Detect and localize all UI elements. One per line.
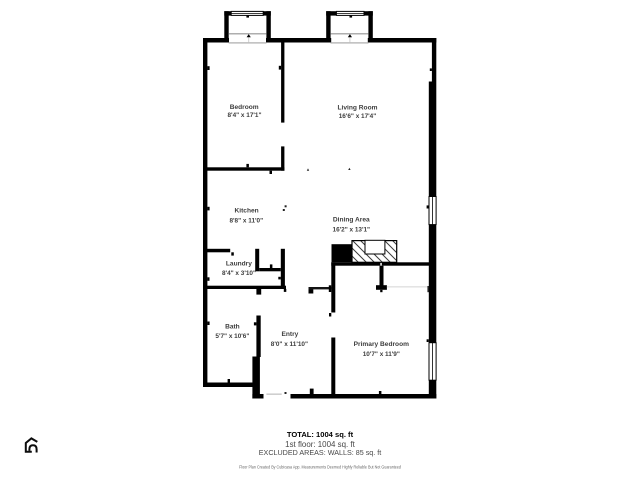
svg-text:TOTAL: 1004 sq. ft: TOTAL: 1004 sq. ft xyxy=(287,430,354,439)
svg-text:Kitchen: Kitchen xyxy=(235,207,259,214)
svg-text:Floor Plan Created By Cubicasa: Floor Plan Created By Cubicasa App. Meas… xyxy=(239,465,402,470)
svg-text:Laundry: Laundry xyxy=(226,261,252,268)
svg-text:Living Room: Living Room xyxy=(338,104,378,111)
svg-text:8'0" x 11'10": 8'0" x 11'10" xyxy=(271,341,308,348)
svg-text:10'7" x 11'9": 10'7" x 11'9" xyxy=(363,351,400,358)
svg-text:Dining Area: Dining Area xyxy=(333,217,370,224)
svg-text:5'7" x 10'6": 5'7" x 10'6" xyxy=(215,333,249,340)
svg-text:8'4" x 3'10": 8'4" x 3'10" xyxy=(222,270,256,277)
svg-text:8'8" x 11'0": 8'8" x 11'0" xyxy=(229,217,263,224)
svg-text:16'6" x 17'4": 16'6" x 17'4" xyxy=(339,113,377,120)
svg-text:Entry: Entry xyxy=(281,331,298,338)
svg-text:16'2" x 13'1": 16'2" x 13'1" xyxy=(333,227,371,234)
svg-text:EXCLUDED AREAS: WALLS: 85 sq.: EXCLUDED AREAS: WALLS: 85 sq. ft xyxy=(259,448,382,457)
svg-text:Bath: Bath xyxy=(225,324,240,331)
svg-text:Primary Bedroom: Primary Bedroom xyxy=(354,341,409,348)
svg-text:8'4" x 17'1": 8'4" x 17'1" xyxy=(228,112,262,119)
svg-text:Bedroom: Bedroom xyxy=(230,104,259,111)
